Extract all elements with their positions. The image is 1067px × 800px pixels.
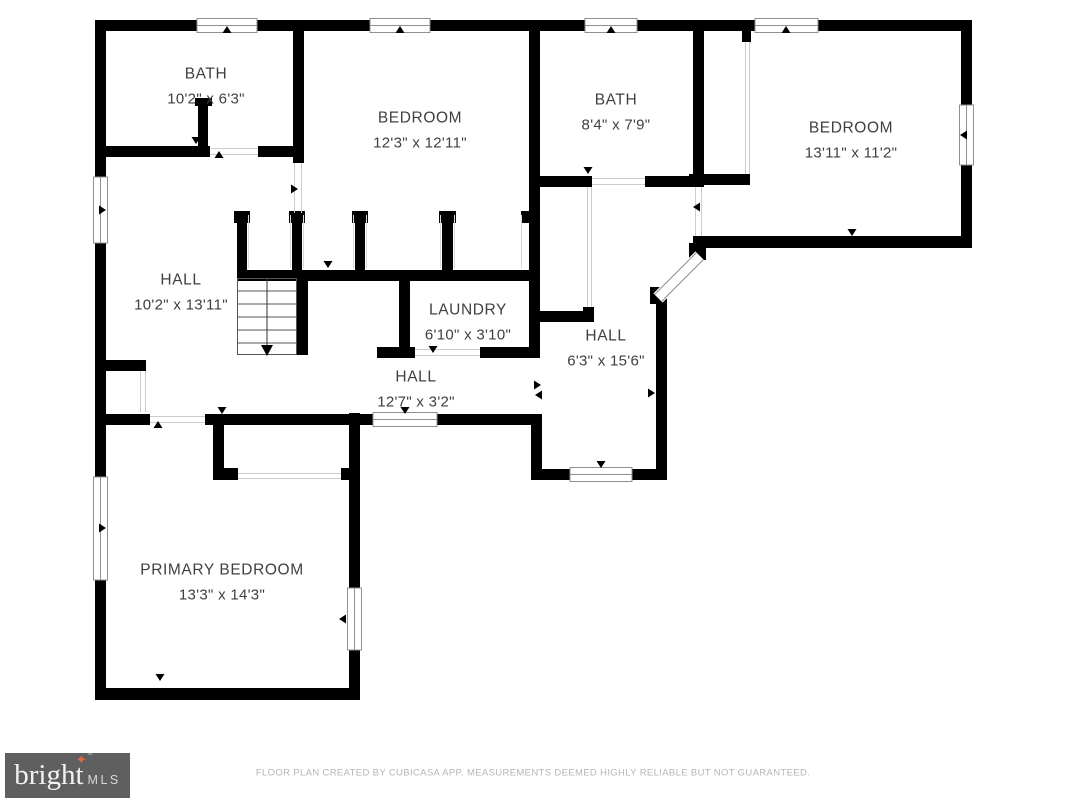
room-name: HALL (567, 328, 645, 344)
room-label-bath-2: BATH 8'4" x 7'9" (582, 92, 651, 132)
room-dimensions: 12'7" x 3'2" (377, 394, 455, 409)
logo-brand-text: bright (14, 761, 83, 790)
room-dimensions: 10'2" x 13'11" (134, 297, 228, 312)
floor-plan-drawing (0, 0, 1067, 800)
disclaimer-text: FLOOR PLAN CREATED BY CUBICASA APP. MEAS… (256, 768, 810, 779)
diagonal-window (655, 253, 704, 302)
room-label-hall-3: HALL 6'3" x 15'6" (567, 328, 645, 368)
room-dimensions: 12'3" x 12'11" (373, 135, 467, 150)
trademark-symbol: ™ (87, 753, 93, 759)
room-dimensions: 13'3" x 14'3" (140, 587, 303, 602)
room-name: HALL (134, 272, 228, 288)
room-name: HALL (377, 369, 455, 385)
room-name: BEDROOM (373, 110, 467, 126)
room-name: PRIMARY BEDROOM (140, 562, 303, 578)
room-name: BEDROOM (805, 120, 898, 136)
room-label-hall-1: HALL 10'2" x 13'11" (134, 272, 228, 312)
room-dimensions: 6'3" x 15'6" (567, 353, 645, 368)
room-label-primary-bedroom: PRIMARY BEDROOM 13'3" x 14'3" (140, 562, 303, 602)
room-name: LAUNDRY (425, 302, 511, 318)
brightmls-logo: bright ✦ ™ MLS (5, 753, 130, 798)
floor-plan-page: BATH 10'2" x 6'3" BEDROOM 12'3" x 12'11"… (0, 0, 1067, 800)
stairs (237, 279, 297, 357)
room-dimensions: 10'2" x 6'3" (167, 91, 245, 106)
room-name: BATH (582, 92, 651, 108)
room-label-bath-1: BATH 10'2" x 6'3" (167, 66, 245, 106)
room-label-bedroom-1: BEDROOM 12'3" x 12'11" (373, 110, 467, 150)
room-label-hall-2: HALL 12'7" x 3'2" (377, 369, 455, 409)
logo-mls-text: MLS (88, 773, 121, 787)
star-icon: ✦ (76, 754, 87, 767)
room-dimensions: 13'11" x 11'2" (805, 145, 898, 160)
room-label-bedroom-2: BEDROOM 13'11" x 11'2" (805, 120, 898, 160)
room-dimensions: 6'10" x 3'10" (425, 327, 511, 342)
brightmls-logo-inner: bright ✦ ™ MLS (14, 761, 120, 790)
room-dimensions: 8'4" x 7'9" (582, 117, 651, 132)
room-name: BATH (167, 66, 245, 82)
room-label-laundry: LAUNDRY 6'10" x 3'10" (425, 302, 511, 342)
